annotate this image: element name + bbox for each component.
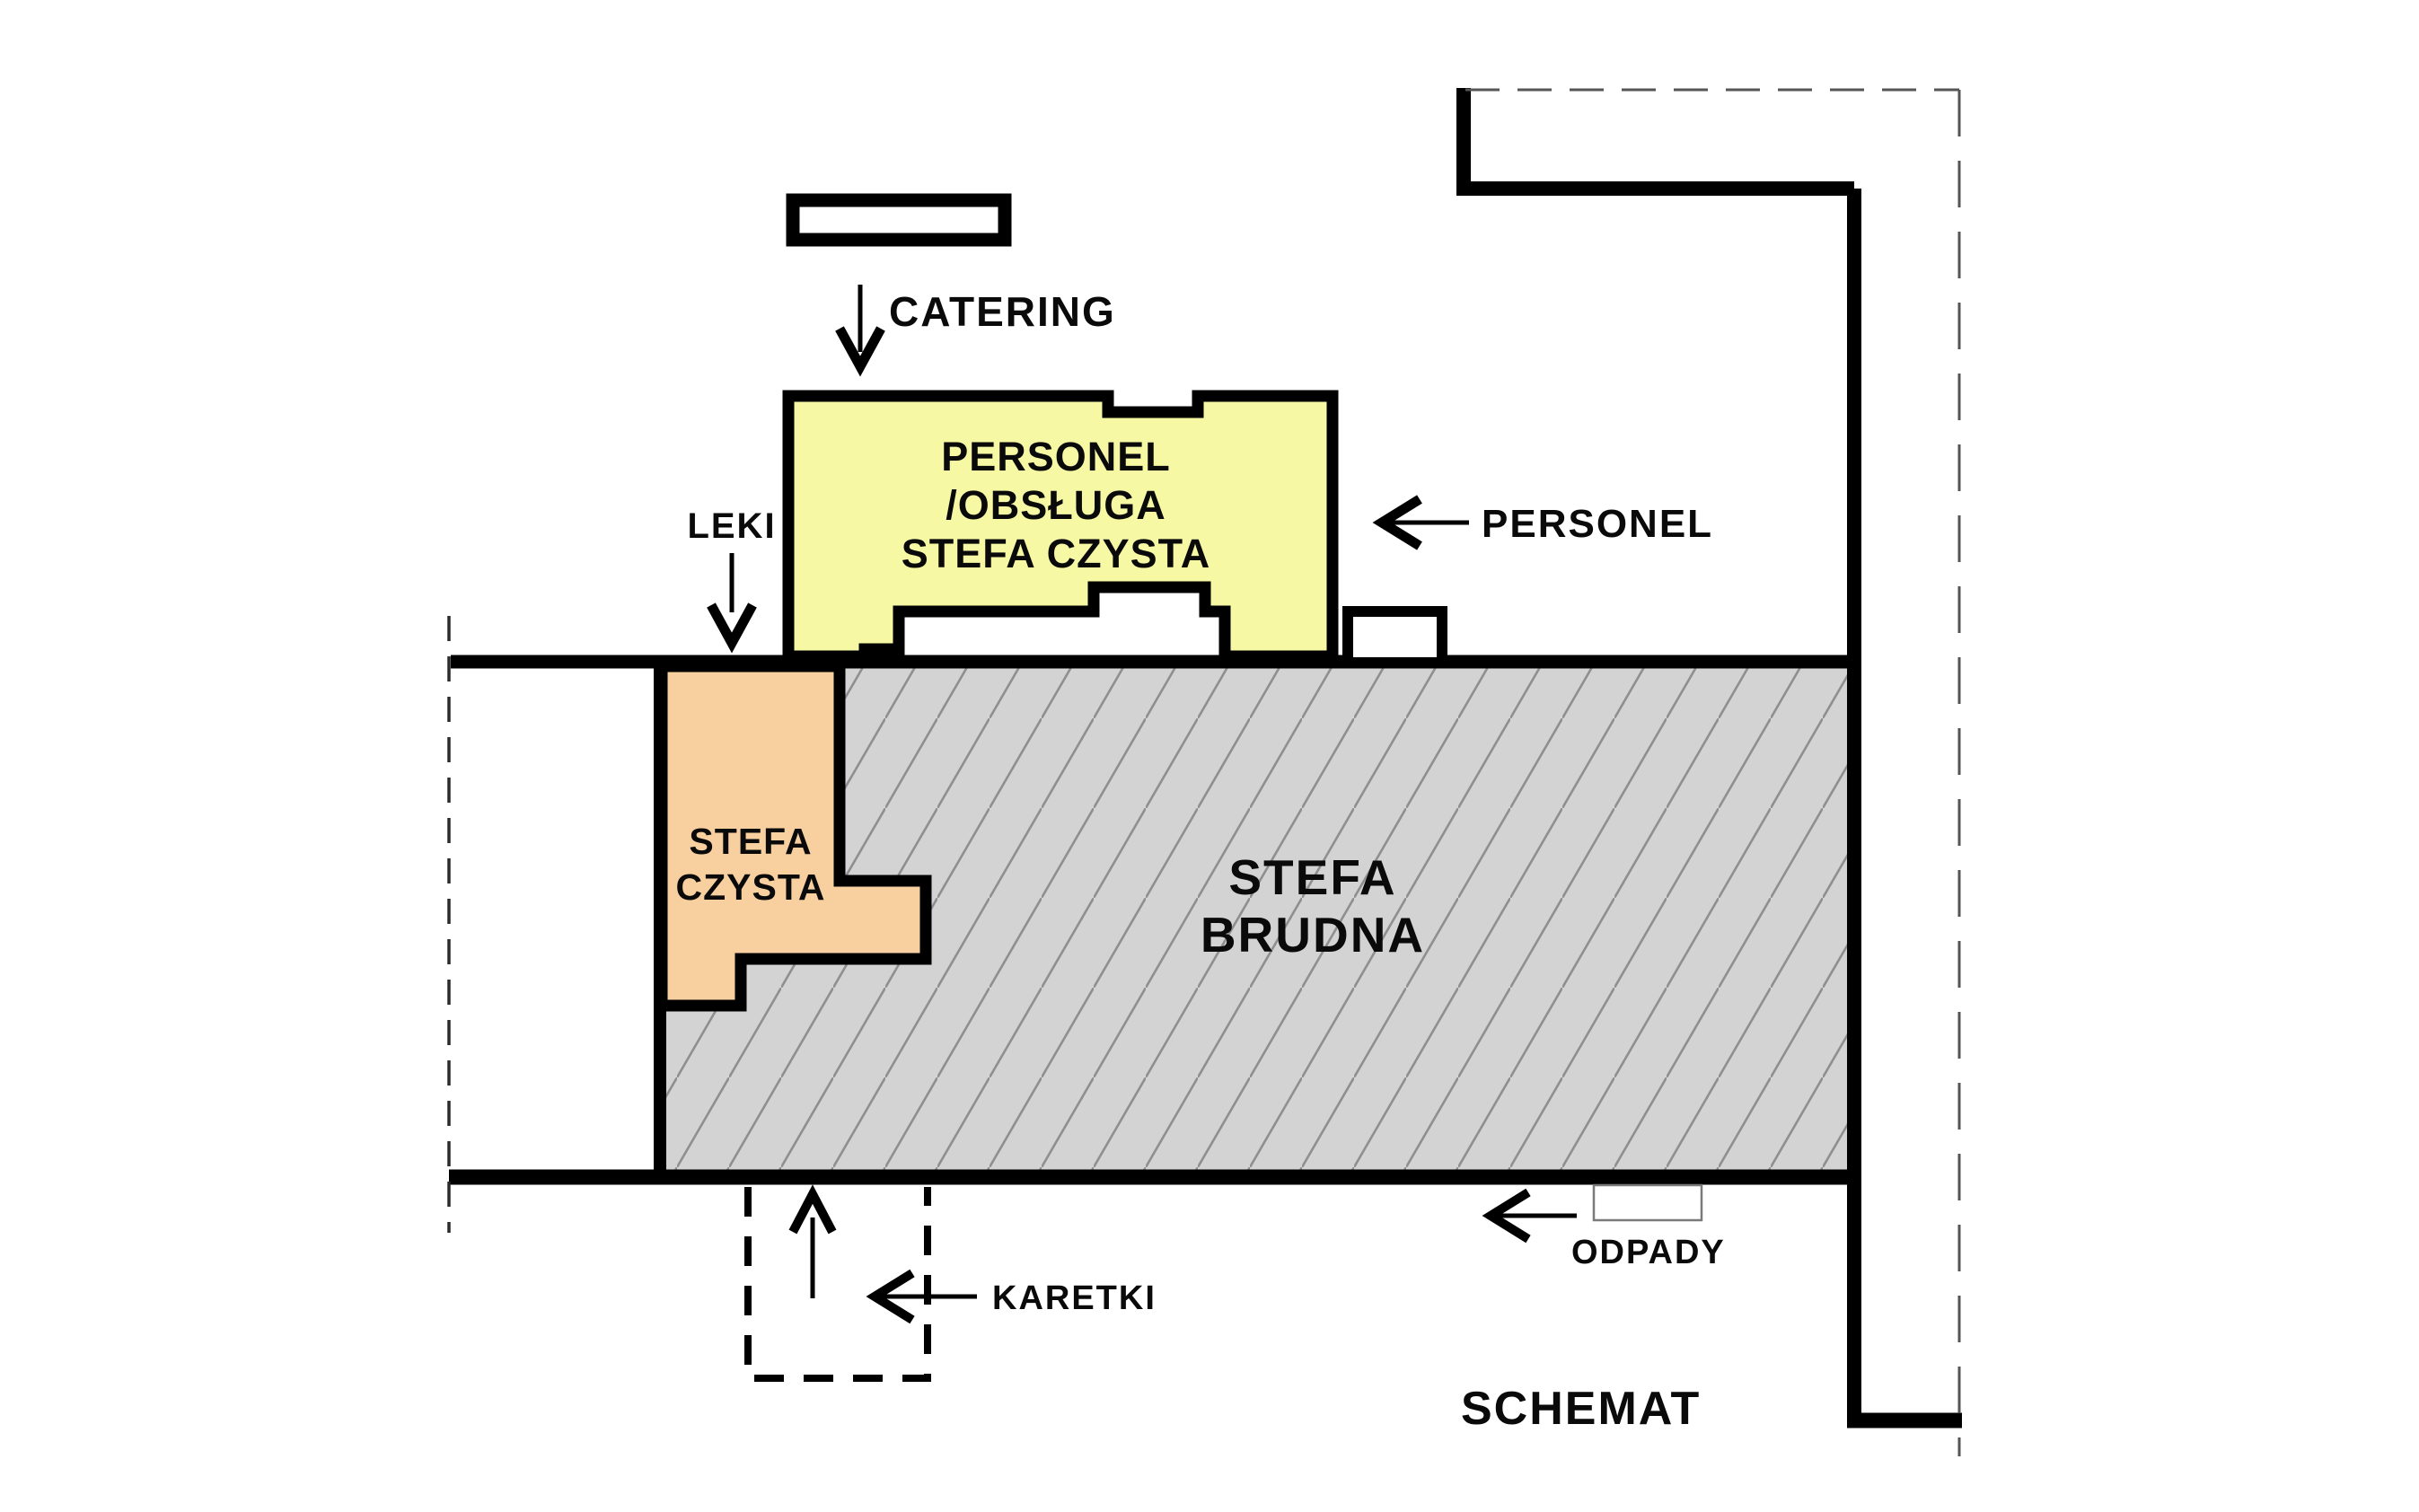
schematic-page: CATERING PERSONEL LEKI PERSONEL /OBSŁUGA… — [0, 0, 2419, 1512]
zone-schematic-diagram: CATERING PERSONEL LEKI PERSONEL /OBSŁUGA… — [0, 0, 2419, 1512]
page-title: SCHEMAT — [1461, 1383, 1701, 1435]
zone-personel-label-line1: PERSONEL — [941, 434, 1171, 479]
leki-arrow-icon — [711, 553, 752, 643]
personel-entry-rect — [1348, 611, 1442, 663]
personel-arrow-icon — [1382, 499, 1469, 546]
catering-label: CATERING — [889, 288, 1116, 335]
zone-czysta-label-line2: CZYSTA — [676, 866, 826, 908]
leki-label: LEKI — [687, 506, 776, 546]
zone-czysta-label-line1: STEFA — [689, 821, 812, 862]
personel-label: PERSONEL — [1482, 502, 1713, 546]
karetki-up-arrow-icon — [793, 1194, 832, 1298]
zone-personel-label-line2: /OBSŁUGA — [946, 482, 1166, 528]
catering-dock-rect — [793, 200, 1005, 240]
odpady-door-rect — [1594, 1185, 1702, 1220]
zone-brudna-label-line1: STEFA — [1228, 849, 1396, 905]
zone-brudna-label-line2: BRUDNA — [1201, 907, 1425, 963]
catering-arrow-icon — [840, 285, 881, 366]
karetki-label: KARETKI — [992, 1279, 1157, 1317]
zone-personel-label-line3: STEFA CZYSTA — [902, 531, 1211, 576]
odpady-left-arrow-icon — [1491, 1192, 1577, 1239]
odpady-label: ODPADY — [1571, 1234, 1726, 1271]
